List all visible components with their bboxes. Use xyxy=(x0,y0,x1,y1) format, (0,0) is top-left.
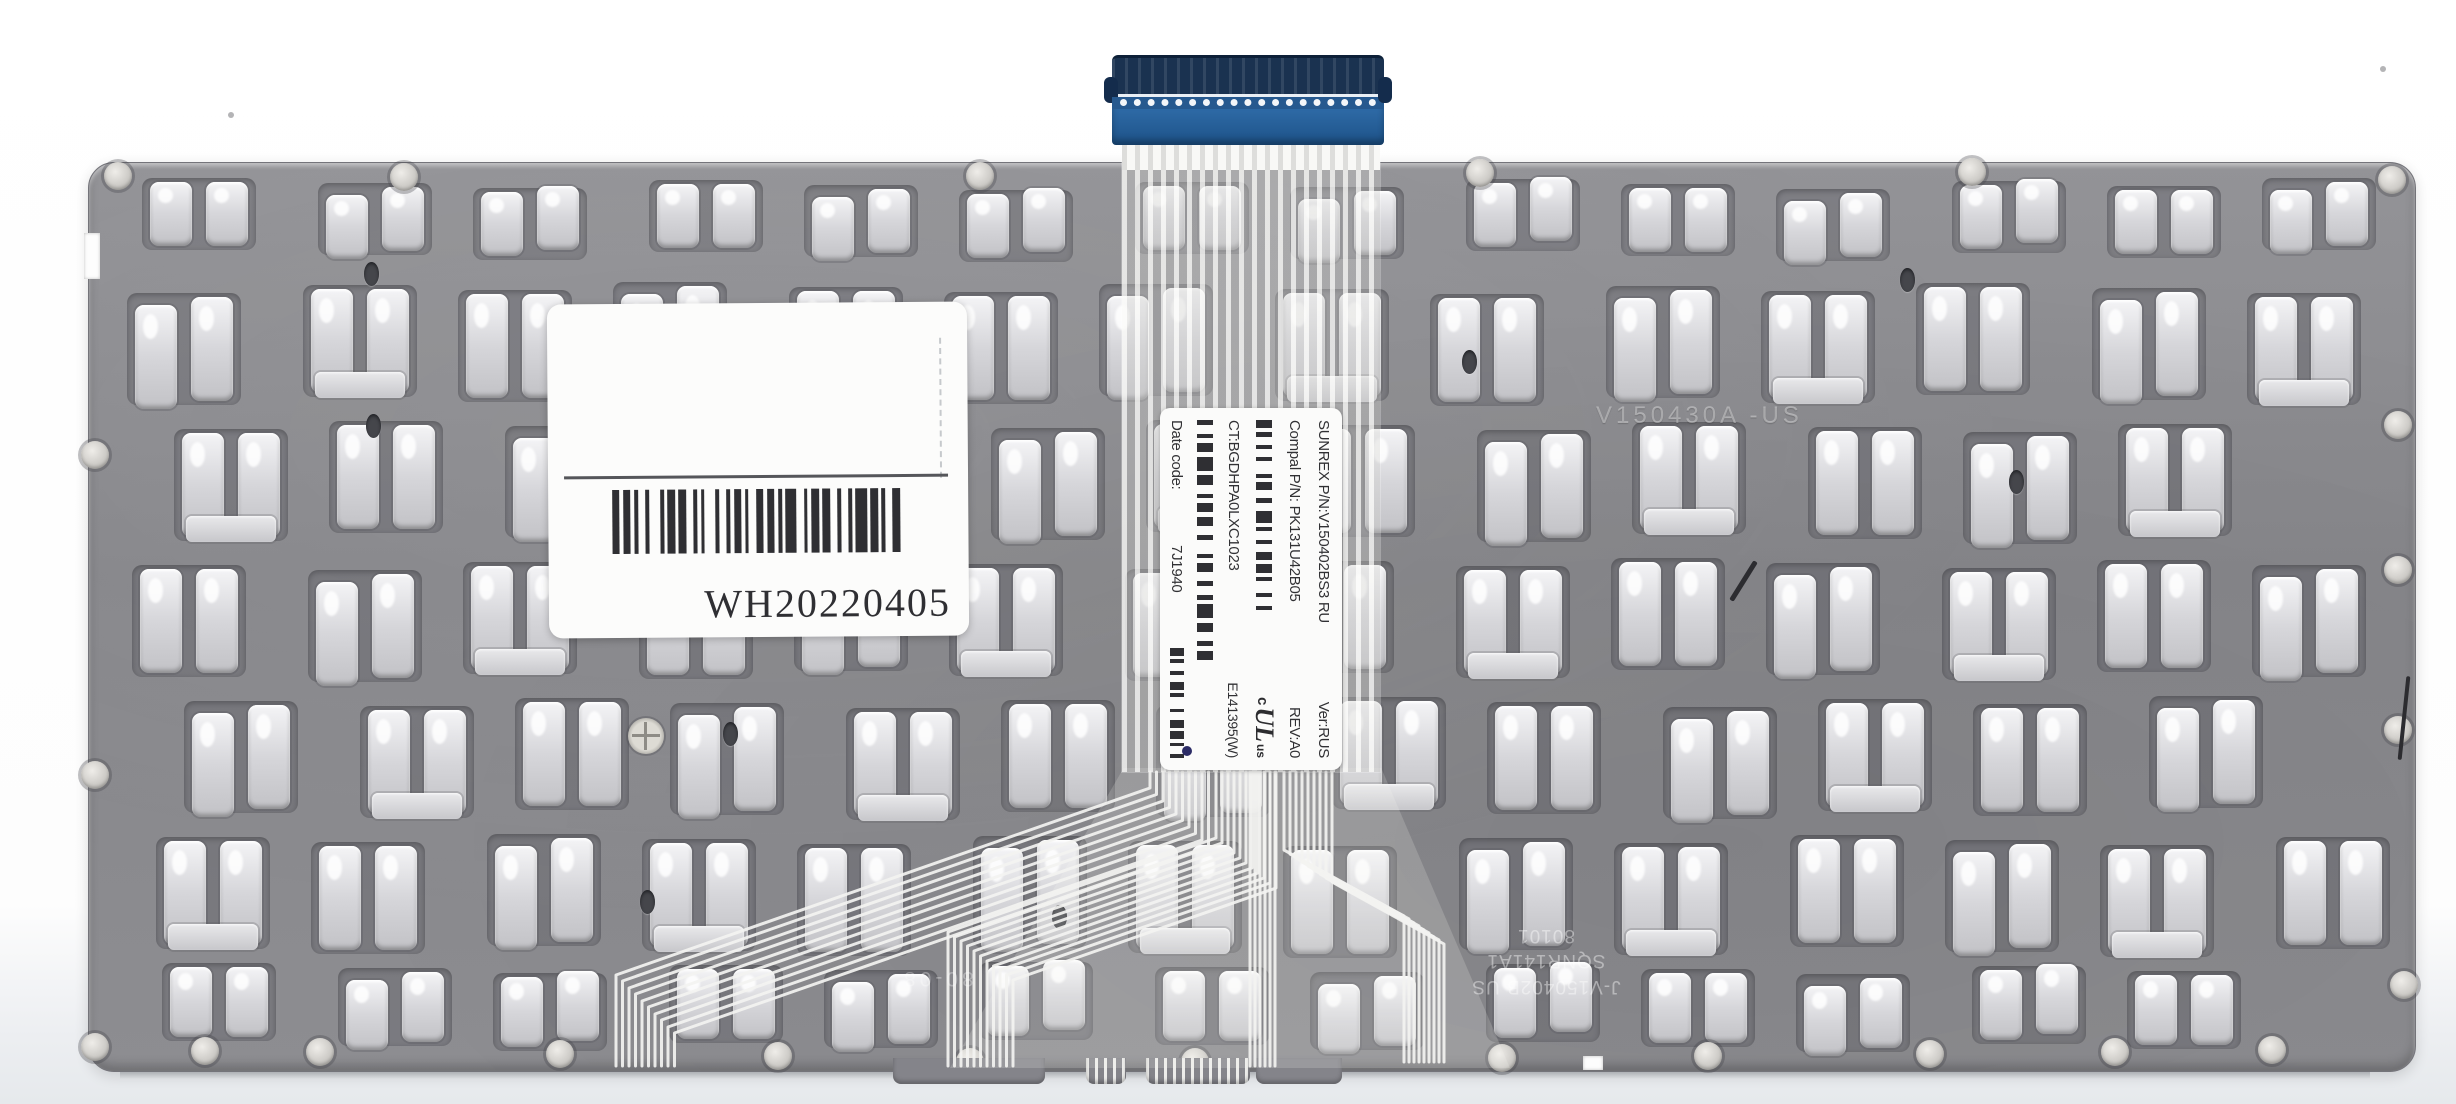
key-mount-cutout xyxy=(1639,967,1757,1049)
key-mount-hook xyxy=(1727,711,1769,815)
key-mount-foot xyxy=(315,372,405,398)
key-mount-cutout xyxy=(1794,972,1912,1054)
mold-stamp: 80-08 xyxy=(900,966,974,990)
alignment-mark xyxy=(628,718,664,754)
key-mount-cutout xyxy=(1971,702,2089,818)
key-mount-hook xyxy=(579,702,621,806)
key-mount-foot xyxy=(2112,932,2202,958)
key-mount-cutout xyxy=(2090,286,2208,402)
key-mount-hook xyxy=(2027,436,2069,540)
ct-number: CT:BGDHPA0LXC1023 xyxy=(1225,420,1242,571)
key-mount-hook xyxy=(523,702,565,806)
key-mount-foot xyxy=(1468,653,1558,679)
key-mount-cutout xyxy=(1454,564,1572,680)
key-mount-cutout xyxy=(316,181,434,257)
key-mount-foot xyxy=(186,516,276,542)
ribbon-part-label: SUNREX P/N:V150402BS3 RU Ver:RUS Compal … xyxy=(1160,408,1342,770)
plate-model-stamp: V150430A -US xyxy=(1596,402,1803,430)
key-mount-cutout xyxy=(471,186,589,262)
key-mount-hook xyxy=(393,425,435,529)
key-mount-cutout xyxy=(1464,177,1582,253)
key-mount-hook xyxy=(2171,190,2213,254)
vent-hole xyxy=(1462,350,1477,374)
key-mount-foot xyxy=(1954,655,2044,681)
key-mount-hook xyxy=(1854,839,1896,943)
date-code-row: Date code: 7J1940 xyxy=(1168,420,1185,758)
key-mount-cutout xyxy=(1816,697,1934,813)
warranty-barcode xyxy=(612,488,904,554)
edge-notch xyxy=(1583,1056,1603,1070)
key-mount-cutout xyxy=(2095,558,2213,674)
key-mount-hook xyxy=(206,182,248,246)
key-mount-cutout xyxy=(668,701,786,817)
key-mount-cutout xyxy=(2098,843,2216,959)
screw-hole xyxy=(1466,159,1494,187)
label-rule xyxy=(564,474,948,480)
key-mount-hook xyxy=(2157,708,2199,812)
warranty-code: WH20220405 xyxy=(704,579,951,628)
sunrex-part-number: SUNREX P/N:V150402BS3 RU xyxy=(1315,420,1332,623)
key-mount-hook xyxy=(1438,298,1480,402)
key-mount-hook xyxy=(1614,298,1656,402)
key-mount-cutout xyxy=(989,426,1107,542)
key-mount-cutout xyxy=(802,183,920,259)
key-mount-cutout xyxy=(1604,284,1722,400)
key-mount-hook xyxy=(2037,708,2079,812)
key-mount-hook xyxy=(2016,179,2058,243)
key-mount-hook xyxy=(1804,986,1846,1056)
key-mount-hook xyxy=(1798,839,1840,943)
key-mount-hook xyxy=(1960,185,2002,249)
key-mount-hook xyxy=(170,967,212,1037)
screw-hole xyxy=(1694,1042,1722,1070)
key-mount-hook xyxy=(678,715,720,819)
key-mount-hook xyxy=(2316,569,2358,673)
key-mount-foot xyxy=(654,926,744,952)
connector-body xyxy=(1112,109,1384,145)
ribbon-barcode-1 xyxy=(1256,420,1272,610)
key-mount-foot xyxy=(961,651,1051,677)
key-mount-cutout xyxy=(358,704,476,820)
key-mount-foot xyxy=(1773,378,1863,404)
key-mount-cutout xyxy=(1970,964,2088,1046)
key-mount-hook xyxy=(981,848,1023,952)
key-mount-hook xyxy=(226,967,268,1037)
key-mount-hook xyxy=(868,189,910,253)
key-mount-cutout xyxy=(1914,281,2032,397)
key-mount-hook xyxy=(319,846,361,950)
screw-hole xyxy=(966,162,994,190)
key-mount-hook xyxy=(1649,973,1691,1043)
screw-hole xyxy=(2101,1038,2129,1066)
key-mount-hook xyxy=(1816,431,1858,535)
key-mount-hook xyxy=(1971,444,2013,548)
key-mount-hook xyxy=(495,846,537,950)
screw-hole xyxy=(2378,166,2406,194)
key-mount-hook xyxy=(657,184,699,248)
ul-certification-mark: c UL us xyxy=(1254,697,1275,758)
key-mount-foot xyxy=(2130,511,2220,537)
key-mount-cutout xyxy=(999,698,1117,814)
tail-stamp-sqnr: SQNR141A1 xyxy=(1448,948,1644,974)
key-mount-hook xyxy=(2340,841,2382,945)
screw-hole xyxy=(191,1037,219,1065)
key-mount-hook xyxy=(812,197,854,261)
ffc-connector xyxy=(1112,55,1384,145)
ink-dot xyxy=(1182,746,1192,756)
key-mount-hook xyxy=(1541,434,1583,538)
key-mount-hook xyxy=(1474,183,1516,247)
key-mount-hook xyxy=(135,305,177,409)
key-mount-cutout xyxy=(140,176,258,252)
compal-part-number: Compal P/N: PK131U42B05 xyxy=(1286,420,1303,602)
key-mount-cutout xyxy=(327,419,445,535)
key-mount-hook xyxy=(1485,442,1527,546)
ct-row: CT:BGDHPA0LXC1023 E141395(W) xyxy=(1225,420,1242,758)
screw-hole xyxy=(764,1042,792,1070)
key-mount-hook xyxy=(326,195,368,259)
key-mount-cutout xyxy=(1774,187,1892,263)
ribbon-part-label-content: SUNREX P/N:V150402BS3 RU Ver:RUS Compal … xyxy=(1160,408,1342,770)
key-mount-hook xyxy=(1055,432,1097,536)
key-mount-hook xyxy=(2260,577,2302,681)
key-mount-cutout xyxy=(160,961,278,1043)
key-mount-hook xyxy=(537,186,579,250)
ul-logo: UL xyxy=(1254,707,1275,742)
key-mount-hook xyxy=(2284,841,2326,945)
key-mount-hook xyxy=(1065,704,1107,808)
key-mount-hook xyxy=(191,297,233,401)
key-mount-hook xyxy=(1860,978,1902,1048)
photo-canvas: V150430A -US WH20220405 SUNREX P/N:V1504… xyxy=(0,0,2456,1104)
key-mount-hook xyxy=(1872,431,1914,535)
key-mount-cutout xyxy=(1619,182,1737,258)
key-mount-hook xyxy=(1671,719,1713,823)
ul-us: us xyxy=(1254,744,1268,758)
vent-hole xyxy=(364,262,379,286)
vent-hole xyxy=(640,890,655,914)
key-mount-hook xyxy=(2100,300,2142,404)
key-mount-hook xyxy=(557,971,599,1041)
key-mount-cutout xyxy=(309,840,427,956)
screw-hole xyxy=(2258,1036,2286,1064)
key-mount-hook xyxy=(2156,292,2198,396)
connector-pin-dots xyxy=(1112,97,1384,109)
revision-text: REV:A0 xyxy=(1286,707,1303,758)
key-mount-hook xyxy=(346,980,388,1050)
key-mount-hook xyxy=(1675,562,1717,666)
edge-notch xyxy=(84,233,100,279)
key-mount-hook xyxy=(1705,973,1747,1043)
key-mount-cutout xyxy=(1943,838,2061,954)
ribbon-barcode-3 xyxy=(1170,648,1184,758)
screw-hole xyxy=(81,761,109,789)
screw-hole xyxy=(306,1038,334,1066)
compal-part-row: Compal P/N: PK131U42B05 REV:A0 xyxy=(1286,420,1303,758)
key-mount-hook xyxy=(733,969,775,1039)
label-fold-mark xyxy=(939,338,942,478)
key-mount-cutout xyxy=(640,837,758,953)
key-mount-cutout xyxy=(301,283,419,399)
key-mount-cutout xyxy=(2245,291,2363,407)
key-mount-hook xyxy=(196,569,238,673)
key-mount-hook xyxy=(337,425,379,529)
key-mount-hook xyxy=(192,713,234,817)
key-mount-hook xyxy=(2036,964,2078,1034)
key-mount-foot xyxy=(2259,380,2349,406)
warranty-label: WH20220405 xyxy=(547,302,969,639)
key-mount-hook xyxy=(2135,975,2177,1045)
key-mount-cutout xyxy=(513,696,631,812)
key-mount-hook xyxy=(734,707,776,811)
key-mount-cutout xyxy=(306,568,424,684)
key-mount-hook xyxy=(1670,290,1712,394)
key-mount-cutout xyxy=(1661,705,1779,821)
key-mount-hook xyxy=(1980,287,2022,391)
key-mount-hook xyxy=(1494,298,1536,402)
key-mount-cutout xyxy=(1475,428,1593,544)
key-mount-hook xyxy=(2115,190,2157,254)
key-mount-hook xyxy=(402,972,444,1042)
key-mount-hook xyxy=(1023,188,1065,252)
key-mount-hook xyxy=(1495,706,1537,810)
dust-speck xyxy=(228,112,234,118)
tail-stamp-part: J-V150402B US xyxy=(1448,973,1644,999)
key-mount-hook xyxy=(248,705,290,809)
key-mount-hook xyxy=(832,982,874,1052)
key-mount-cutout xyxy=(795,842,913,958)
key-mount-hook xyxy=(1008,296,1050,400)
vent-hole xyxy=(366,414,381,438)
ul-c: c xyxy=(1254,697,1271,705)
key-mount-cutout xyxy=(130,563,248,679)
key-mount-hook xyxy=(967,194,1009,258)
key-mount-cutout xyxy=(647,178,765,254)
key-mount-hook xyxy=(2270,190,2312,254)
key-mount-cutout xyxy=(1630,420,1748,536)
screw-hole xyxy=(1958,158,1986,186)
key-mount-cutout xyxy=(2125,969,2243,1051)
key-mount-hook xyxy=(2105,564,2147,668)
screw-hole xyxy=(81,1033,109,1061)
tail-stamp-code: 80101 xyxy=(1448,922,1644,948)
key-mount-cutout xyxy=(2147,694,2265,810)
key-mount-hook xyxy=(316,582,358,686)
version-text: Ver:RUS xyxy=(1315,702,1332,758)
key-mount-hook xyxy=(2009,844,2051,948)
key-mount-foot xyxy=(372,793,462,819)
key-mount-cutout xyxy=(491,971,609,1053)
key-mount-hook xyxy=(861,848,903,952)
ribbon-barcode-2 xyxy=(1197,420,1213,660)
key-mount-hook xyxy=(375,846,417,950)
barcode-row-1: c UL us xyxy=(1254,420,1275,758)
key-mount-cutout xyxy=(1788,833,1906,949)
key-mount-hook xyxy=(1830,567,1872,671)
key-mount-hook xyxy=(2191,975,2233,1045)
key-mount-cutout xyxy=(1806,425,1924,541)
key-mount-cutout xyxy=(125,291,243,407)
key-mount-cutout xyxy=(2274,835,2392,951)
key-mount-foot xyxy=(1830,786,1920,812)
key-mount-hook xyxy=(1981,708,2023,812)
key-mount-hook xyxy=(1924,287,1966,391)
key-mount-hook xyxy=(1774,575,1816,679)
key-mount-foot xyxy=(475,649,565,675)
key-mount-hook xyxy=(1619,562,1661,666)
screw-hole xyxy=(81,441,109,469)
key-mount-hook xyxy=(150,182,192,246)
key-mount-cutout xyxy=(485,832,603,948)
key-mount-hook xyxy=(1980,970,2022,1040)
key-mount-cutout xyxy=(2250,563,2368,679)
key-mount-hook xyxy=(1530,177,1572,241)
vent-hole xyxy=(723,722,738,746)
key-mount-hook xyxy=(551,838,593,942)
key-mount-hook xyxy=(466,294,508,398)
key-mount-hook xyxy=(1784,201,1826,265)
key-mount-hook xyxy=(1629,188,1671,252)
key-mount-cutout xyxy=(1940,566,2058,682)
key-mount-cutout xyxy=(154,835,272,951)
key-mount-cutout xyxy=(172,427,290,543)
date-code-label: Date code: xyxy=(1168,420,1185,490)
key-mount-hook xyxy=(999,440,1041,544)
key-mount-cutout xyxy=(844,706,962,822)
key-mount-cutout xyxy=(1950,179,2068,255)
key-mount-cutout xyxy=(1485,700,1603,816)
key-mount-cutout xyxy=(1428,292,1546,408)
key-mount-hook xyxy=(501,977,543,1047)
key-mount-hook xyxy=(1953,852,1995,956)
ul-file-number: E141395(W) xyxy=(1225,682,1241,758)
key-mount-hook xyxy=(1009,704,1051,808)
key-mount-hook xyxy=(372,574,414,678)
screw-hole xyxy=(390,163,418,191)
key-mount-hook xyxy=(805,848,847,952)
vent-hole xyxy=(2009,470,2024,494)
key-mount-cutout xyxy=(2116,422,2234,538)
date-code-value: 7J1940 xyxy=(1168,545,1185,592)
screw-hole xyxy=(2384,556,2412,584)
key-mount-hook xyxy=(677,969,719,1039)
key-mount-cutout xyxy=(2105,184,2223,260)
key-mount-cutout xyxy=(2260,176,2378,252)
key-mount-cutout xyxy=(667,963,785,1045)
key-mount-hook xyxy=(2213,700,2255,804)
ribbon-tail-stamps: J-V150402B US SQNR141A1 80101 xyxy=(1448,922,1644,999)
screw-hole xyxy=(1916,1040,1944,1068)
key-mount-hook xyxy=(1551,706,1593,810)
barcode-row-2 xyxy=(1197,420,1213,758)
key-mount-cutout xyxy=(1609,556,1727,672)
sunrex-part-row: SUNREX P/N:V150402BS3 RU Ver:RUS xyxy=(1315,420,1332,758)
key-mount-hook xyxy=(481,192,523,256)
key-mount-hook xyxy=(2326,182,2368,246)
key-mount-foot xyxy=(168,924,258,950)
key-mount-hook xyxy=(2161,564,2203,668)
key-mount-foot xyxy=(858,795,948,821)
key-mount-cutout xyxy=(957,188,1075,264)
dust-speck xyxy=(2380,66,2386,72)
screw-hole xyxy=(546,1040,574,1068)
key-mount-cutout xyxy=(1759,289,1877,405)
key-mount-hook xyxy=(140,569,182,673)
screw-hole xyxy=(104,162,132,190)
key-mount-cutout xyxy=(1764,561,1882,677)
screw-hole xyxy=(2384,716,2412,744)
key-mount-hook xyxy=(1685,188,1727,252)
key-mount-foot xyxy=(1644,509,1734,535)
key-mount-hook xyxy=(713,184,755,248)
vent-hole xyxy=(1900,268,1915,292)
screw-hole xyxy=(2390,971,2418,999)
key-mount-hook xyxy=(1840,193,1882,257)
key-mount-cutout xyxy=(182,699,300,815)
key-mount-cutout xyxy=(336,966,454,1048)
connector-latch xyxy=(1112,55,1384,94)
key-mount-hook xyxy=(382,187,424,251)
screw-hole xyxy=(2384,411,2412,439)
